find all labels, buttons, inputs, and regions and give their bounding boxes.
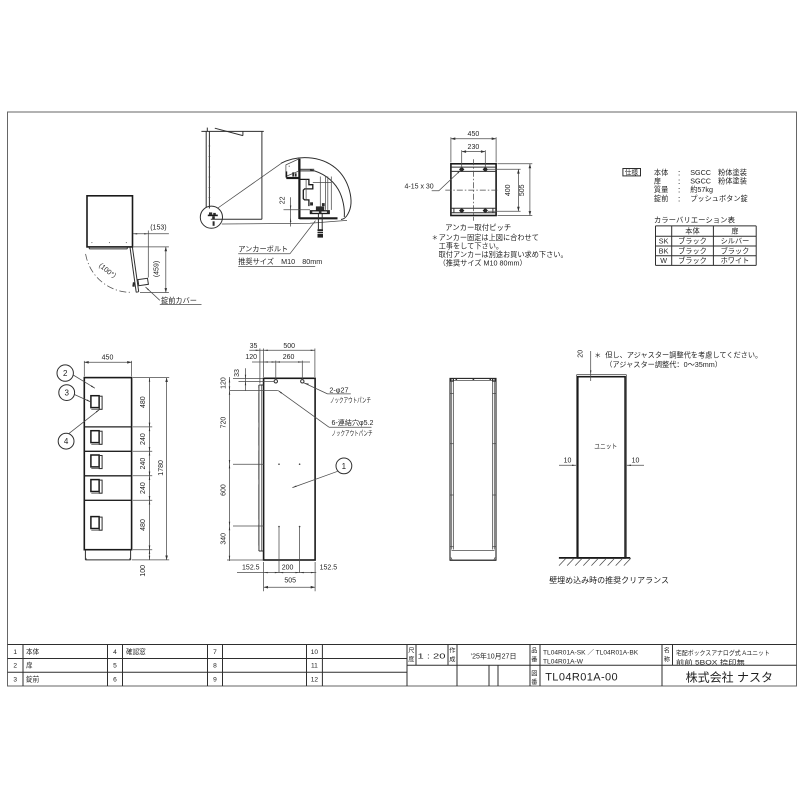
- svg-text:(100°）: (100°）: [97, 262, 120, 283]
- svg-text:壁埋め込み時の推奨クリアランス: 壁埋め込み時の推奨クリアランス: [549, 575, 669, 585]
- svg-text:340: 340: [221, 533, 228, 545]
- svg-text:100: 100: [140, 565, 147, 577]
- svg-text:扉: 扉: [26, 661, 33, 670]
- svg-text:20: 20: [578, 350, 585, 358]
- svg-text:ホワイト: ホワイト: [721, 256, 750, 265]
- svg-text:（推奨サイズ M10 80mm）: （推奨サイズ M10 80mm）: [439, 259, 527, 268]
- svg-text:成: 成: [449, 656, 455, 664]
- svg-text:株式会社 ナスタ: 株式会社 ナスタ: [686, 670, 773, 685]
- svg-text:4: 4: [64, 437, 69, 446]
- svg-text:扉: 扉: [731, 227, 738, 236]
- svg-text:480: 480: [140, 519, 147, 531]
- svg-text:ブラック: ブラック: [721, 246, 750, 255]
- svg-text:3: 3: [13, 676, 17, 683]
- svg-text:：: ：: [678, 196, 685, 203]
- svg-text:但し、アジャスター調整代を考慮してください。: 但し、アジャスター調整代を考慮してください。: [605, 350, 762, 359]
- svg-text:番: 番: [531, 657, 537, 664]
- svg-text:称: 称: [664, 656, 670, 664]
- svg-text:アンカーボルト: アンカーボルト: [238, 244, 288, 253]
- svg-text:152.5: 152.5: [242, 565, 260, 572]
- svg-text:720: 720: [221, 417, 228, 429]
- svg-text:ユニット: ユニット: [594, 444, 617, 451]
- svg-text:230: 230: [468, 144, 480, 151]
- svg-text:BK: BK: [659, 246, 669, 255]
- svg-text:推奨サイズ M10 80mm: 推奨サイズ M10 80mm: [238, 257, 322, 266]
- svg-text:本体: 本体: [685, 227, 699, 236]
- svg-text:120: 120: [221, 377, 228, 389]
- svg-text:錠前カバー: 錠前カバー: [161, 296, 197, 305]
- svg-text:450: 450: [102, 355, 114, 362]
- svg-text:200: 200: [282, 565, 294, 572]
- svg-text:7: 7: [213, 649, 217, 656]
- svg-text:240: 240: [140, 458, 147, 470]
- svg-text:錠前: 錠前: [26, 674, 40, 683]
- svg-text:500: 500: [283, 343, 295, 350]
- svg-text:3: 3: [64, 389, 69, 398]
- svg-text:度: 度: [408, 656, 414, 664]
- svg-text:5: 5: [113, 663, 117, 670]
- svg-text:扉: 扉: [654, 177, 661, 186]
- svg-text:1: 1: [13, 649, 17, 656]
- svg-text:ブラック: ブラック: [678, 246, 707, 255]
- svg-text:ブラック: ブラック: [678, 256, 707, 265]
- svg-text:SGCC 粉体塗装: SGCC 粉体塗装: [690, 177, 747, 186]
- svg-text:(459): (459): [154, 261, 161, 277]
- svg-text:TL04R01A-W: TL04R01A-W: [543, 658, 584, 665]
- svg-text:6-連結穴φ5.2: 6-連結穴φ5.2: [332, 418, 374, 427]
- svg-text:ノックアウトパンチ: ノックアウトパンチ: [332, 430, 373, 438]
- svg-text:600: 600: [221, 484, 228, 496]
- svg-text:152.5: 152.5: [320, 565, 338, 572]
- svg-text:：: ：: [678, 170, 685, 177]
- svg-text:12: 12: [311, 676, 319, 683]
- svg-text:8: 8: [213, 663, 217, 670]
- svg-text:6: 6: [113, 676, 117, 683]
- svg-text:SGCC 粉体塗装: SGCC 粉体塗装: [690, 168, 747, 177]
- svg-text:ブラック: ブラック: [678, 237, 707, 246]
- svg-text:4-15 x 30: 4-15 x 30: [405, 184, 434, 191]
- svg-text:120: 120: [245, 354, 257, 361]
- svg-text:宅配ボックスアナログ式 Aユニット: 宅配ボックスアナログ式 Aユニット: [676, 648, 770, 657]
- svg-text:：: ：: [678, 187, 685, 194]
- svg-text:’25年10月27日: ’25年10月27日: [471, 651, 517, 660]
- svg-text:1 : 20: 1 : 20: [418, 653, 446, 660]
- svg-text:35: 35: [250, 343, 258, 350]
- svg-text:約57kg: 約57kg: [690, 185, 713, 194]
- svg-text:本体: 本体: [654, 168, 668, 177]
- svg-text:260: 260: [283, 354, 295, 361]
- svg-text:確認窓: 確認窓: [126, 647, 146, 656]
- svg-text:前前 5BOX 捺印無: 前前 5BOX 捺印無: [676, 658, 746, 667]
- svg-text:505: 505: [519, 184, 526, 196]
- svg-text:9: 9: [213, 676, 217, 683]
- svg-text:シルバー: シルバー: [721, 237, 750, 246]
- svg-text:TL04R01A-00: TL04R01A-00: [545, 672, 618, 684]
- svg-text:10: 10: [564, 457, 572, 464]
- svg-text:240: 240: [140, 433, 147, 445]
- svg-text:10: 10: [632, 457, 640, 464]
- svg-text:仕様: 仕様: [625, 168, 639, 177]
- svg-text:(153): (153): [150, 225, 166, 232]
- svg-text:＊: ＊: [594, 352, 601, 359]
- svg-text:本体: 本体: [26, 647, 40, 656]
- svg-text:22: 22: [279, 196, 286, 204]
- svg-text:240: 240: [140, 482, 147, 494]
- svg-text:名: 名: [664, 647, 670, 655]
- svg-text:2: 2: [63, 369, 68, 378]
- svg-text:品: 品: [531, 648, 537, 655]
- svg-text:図: 図: [531, 671, 537, 678]
- svg-text:11: 11: [311, 663, 318, 670]
- svg-text:作: 作: [449, 647, 455, 655]
- svg-text:＊: ＊: [432, 235, 439, 242]
- svg-text:1780: 1780: [158, 460, 165, 476]
- svg-text:400: 400: [505, 184, 512, 196]
- svg-text:尺: 尺: [408, 648, 414, 655]
- svg-text:：: ：: [678, 179, 685, 186]
- svg-text:SK: SK: [659, 237, 669, 246]
- svg-text:カラーバリエーション表: カラーバリエーション表: [654, 216, 736, 225]
- svg-text:33: 33: [234, 369, 241, 377]
- svg-text:（アジャスター調整代：0～35mm）: （アジャスター調整代：0～35mm）: [605, 360, 722, 369]
- svg-text:480: 480: [140, 396, 147, 408]
- svg-text:番: 番: [531, 679, 537, 686]
- svg-text:1: 1: [342, 462, 347, 471]
- svg-text:ノックアウトパンチ: ノックアウトパンチ: [330, 396, 371, 404]
- svg-text:4: 4: [113, 649, 117, 656]
- svg-text:2: 2: [13, 663, 17, 670]
- svg-text:質量: 質量: [654, 185, 668, 194]
- svg-text:W: W: [660, 256, 667, 265]
- svg-text:錠前: 錠前: [654, 194, 668, 203]
- svg-text:アンカー取付ピッチ: アンカー取付ピッチ: [445, 223, 511, 232]
- svg-text:505: 505: [284, 577, 296, 584]
- svg-text:プッシュボタン錠: プッシュボタン錠: [690, 194, 748, 203]
- svg-text:450: 450: [468, 131, 480, 138]
- svg-text:2-φ27: 2-φ27: [329, 386, 348, 395]
- svg-text:TL04R01A-SK ／ TL04R01A-BK: TL04R01A-SK ／ TL04R01A-BK: [543, 648, 639, 656]
- svg-text:10: 10: [311, 649, 319, 656]
